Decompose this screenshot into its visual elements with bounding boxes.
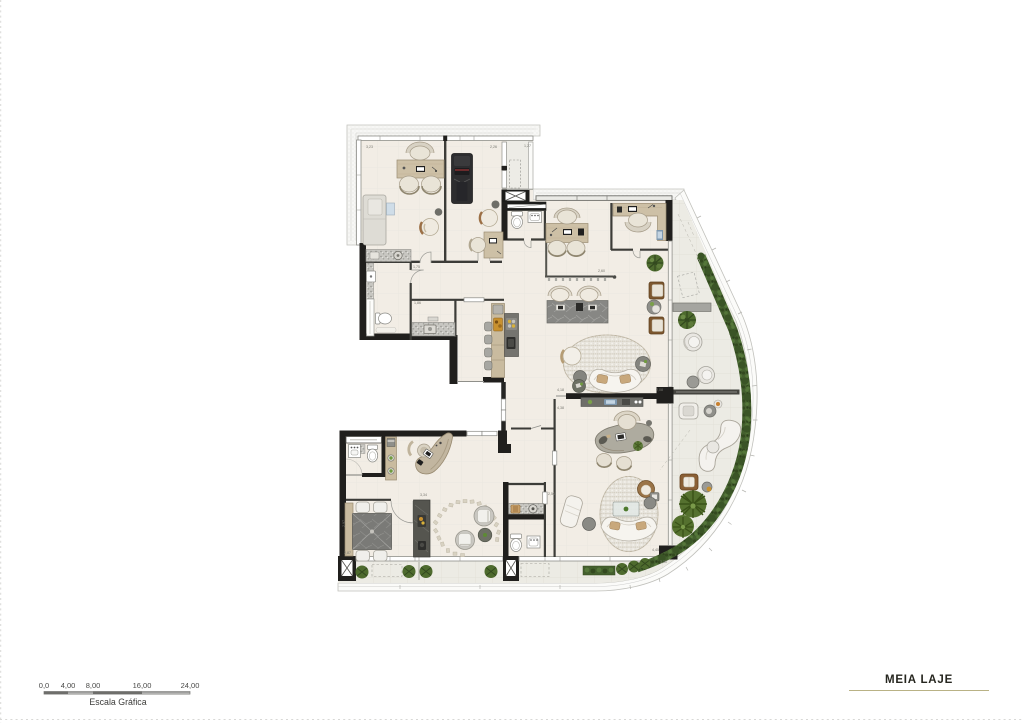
svg-text:2,08: 2,08: [656, 388, 663, 392]
svg-text:1,75: 1,75: [413, 265, 420, 269]
svg-text:8,00: 8,00: [86, 681, 101, 690]
svg-text:4,45: 4,45: [652, 548, 659, 552]
svg-text:0,0: 0,0: [39, 681, 49, 690]
svg-text:2,97: 2,97: [342, 520, 346, 527]
svg-text:3,50: 3,50: [660, 560, 667, 564]
svg-text:2,60: 2,60: [598, 269, 605, 273]
svg-text:2,87: 2,87: [344, 551, 351, 555]
svg-text:4,18: 4,18: [557, 388, 564, 392]
svg-text:1,27: 1,27: [524, 144, 531, 148]
svg-text:Escala Gráfica: Escala Gráfica: [89, 697, 146, 707]
svg-text:4,00: 4,00: [61, 681, 76, 690]
svg-text:4,38: 4,38: [557, 406, 564, 410]
svg-text:2,56: 2,56: [548, 492, 555, 496]
svg-text:16,00: 16,00: [133, 681, 152, 690]
svg-text:1,86: 1,86: [414, 301, 421, 305]
svg-text:MEIA LAJE: MEIA LAJE: [885, 674, 953, 686]
svg-text:3,34: 3,34: [420, 493, 427, 497]
svg-text:3,23: 3,23: [366, 145, 373, 149]
svg-text:2,26: 2,26: [490, 145, 497, 149]
svg-text:24,00: 24,00: [181, 681, 200, 690]
